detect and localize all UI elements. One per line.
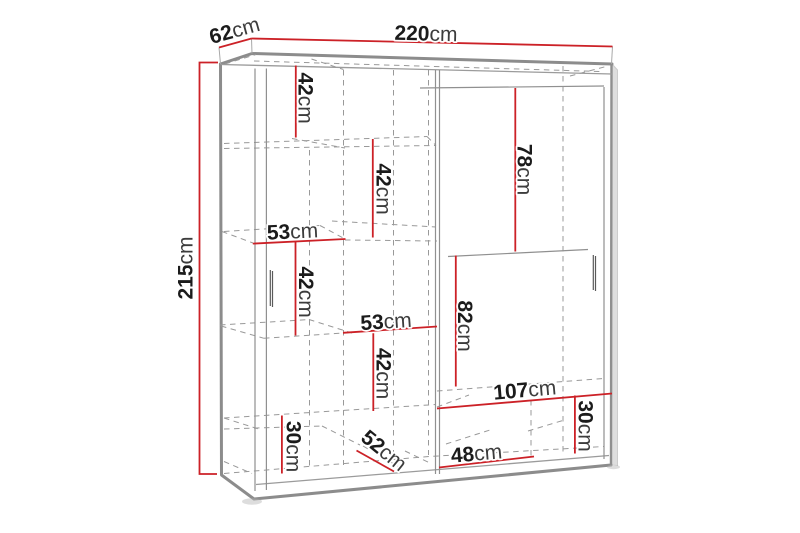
svg-text:30cm: 30cm (282, 421, 305, 472)
svg-text:215cm: 215cm (174, 236, 197, 299)
svg-text:30cm: 30cm (574, 400, 597, 451)
svg-text:82cm: 82cm (454, 300, 477, 351)
svg-text:53cm: 53cm (266, 219, 318, 244)
svg-text:78cm: 78cm (513, 144, 536, 195)
svg-text:42cm: 42cm (294, 72, 317, 123)
svg-text:48cm: 48cm (450, 440, 503, 467)
svg-text:42cm: 42cm (372, 348, 395, 399)
svg-text:42cm: 42cm (372, 163, 395, 214)
svg-text:53cm: 53cm (360, 308, 413, 334)
svg-text:42cm: 42cm (295, 266, 318, 317)
svg-text:220cm: 220cm (394, 21, 458, 45)
